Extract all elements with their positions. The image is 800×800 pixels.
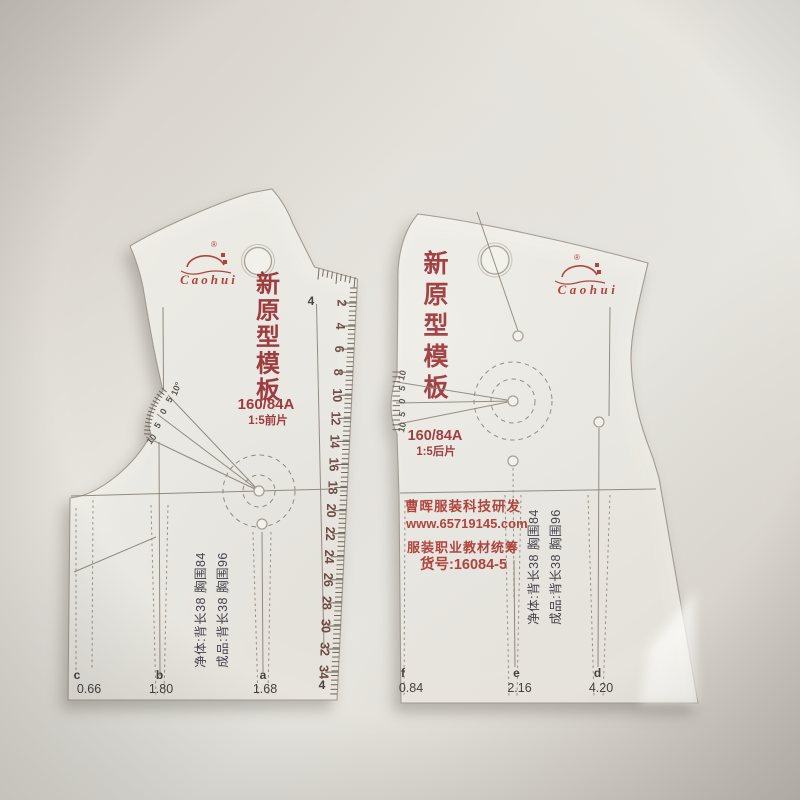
photo-canvas: ® Caohui 新原型模板 160/84A 1:5前片 净体:背长38 胸围8… <box>0 0 800 800</box>
photo-vignette <box>0 0 800 800</box>
photo-of-pattern-templates: ® Caohui 新原型模板 160/84A 1:5前片 净体:背长38 胸围8… <box>0 0 800 800</box>
